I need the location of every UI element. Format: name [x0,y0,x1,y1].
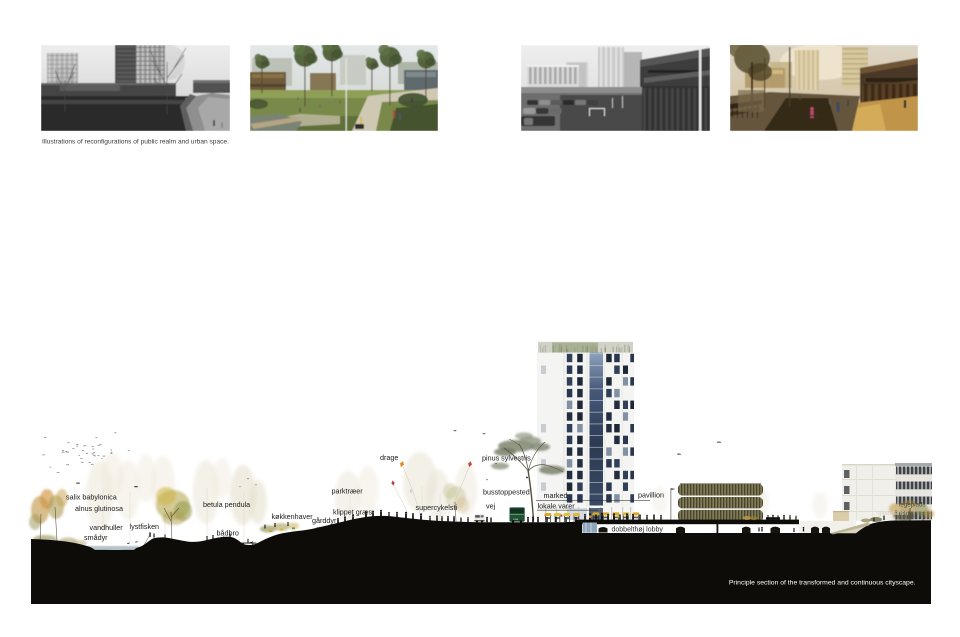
svg-text:alnus glutinosa: alnus glutinosa [75,504,123,513]
svg-text:Principle section of the trans: Principle section of the transformed and… [729,580,916,587]
svg-text:parktræer: parktræer [332,487,364,496]
svg-text:betula pendula: betula pendula [203,500,250,509]
svg-text:gledibanen: gledibanen [878,510,909,517]
svg-text:vej: vej [486,502,496,511]
svg-text:smådyr: smådyr [84,533,108,542]
svg-text:pinus sylvestris: pinus sylvestris [482,454,531,463]
svg-text:busstoppested: busstoppested [483,488,530,497]
svg-text:lystfisken: lystfisken [130,522,160,531]
svg-text:pavillion: pavillion [638,491,664,500]
svg-text:drage: drage [380,453,398,462]
svg-text:salix babylonica: salix babylonica [66,493,117,502]
svg-text:klippet græs: klippet græs [333,508,373,517]
svg-text:marked: marked [544,491,568,500]
svg-text:lokale varer: lokale varer [538,502,576,511]
svg-text:Illustrations of reconfigurati: Illustrations of reconfigurations of pub… [42,138,229,145]
svg-text:køkkenhaver: køkkenhaver [272,512,314,521]
svg-text:gårddyr: gårddyr [312,516,337,525]
svg-text:supercykelsti: supercykelsti [416,503,458,512]
svg-text:bådbro: bådbro [217,529,239,538]
svg-text:dobbelthøj lobby: dobbelthøj lobby [612,526,664,533]
svg-text:vandhuller: vandhuller [90,523,124,532]
svg-text:legeplads: legeplads [899,502,926,509]
